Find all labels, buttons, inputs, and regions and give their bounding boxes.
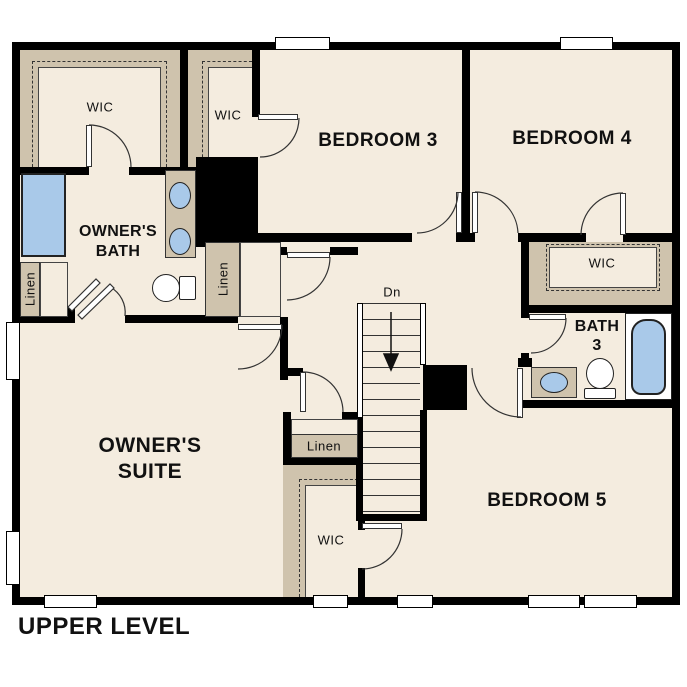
owners-bath-label-line1: OWNER'S (79, 223, 157, 241)
wall-segment (420, 410, 427, 521)
wall-segment (283, 458, 360, 465)
linen-hall-lower-label: Linen (307, 439, 341, 454)
floor-plan: WIC WIC WIC WIC Linen Linen Linen Dn BED… (0, 0, 687, 687)
wall-segment (518, 358, 532, 367)
bathtub (631, 319, 666, 395)
wall-segment (356, 513, 427, 521)
bedroom5-label: BEDROOM 5 (487, 490, 607, 512)
window (275, 37, 330, 50)
staircase (363, 303, 420, 514)
wall-segment (672, 42, 680, 605)
chase-void (423, 365, 467, 410)
linen-hall-lower-interior (291, 419, 358, 435)
door-leaf (238, 324, 282, 330)
wic-owners-interior (38, 67, 161, 167)
sink (169, 228, 191, 255)
owners-bath-label-line2: BATH (96, 243, 140, 261)
bathtub (21, 173, 66, 257)
window (6, 531, 20, 585)
chase-void (196, 157, 258, 247)
wall-segment (623, 233, 672, 242)
toilet-tank (584, 388, 616, 399)
bedroom3-label: BEDROOM 3 (318, 130, 438, 152)
linen-bath-label: Linen (23, 272, 38, 306)
toilet-bowl (152, 274, 180, 302)
plan-title: UPPER LEVEL (18, 613, 190, 641)
bath3-label-line2: 3 (592, 337, 601, 355)
door-leaf (258, 114, 298, 120)
window (584, 595, 637, 608)
stairs-dn-label: Dn (383, 285, 401, 300)
wic-bedroom3-label: WIC (215, 108, 242, 123)
wall-segment (529, 305, 672, 313)
door-leaf (472, 192, 478, 233)
window (560, 37, 613, 50)
wall-segment (330, 247, 358, 255)
bath3-label-line1: BATH (575, 318, 619, 336)
wic-owners-label: WIC (87, 100, 114, 115)
linen-bath-interior (40, 262, 68, 317)
door-leaf (517, 368, 523, 418)
wic-bedroom5-label: WIC (318, 533, 345, 548)
door-leaf (86, 125, 92, 167)
linen-hall-upper-interior (240, 242, 281, 317)
bedroom4-label: BEDROOM 4 (512, 128, 632, 150)
wall-segment (258, 233, 412, 242)
window (528, 595, 580, 608)
window (6, 322, 20, 380)
toilet-tank (179, 276, 196, 300)
sink (540, 372, 568, 393)
wall-segment (521, 400, 672, 408)
stair-railing (420, 303, 426, 365)
wall-segment (521, 242, 529, 318)
wall-segment (358, 568, 365, 597)
window (313, 595, 348, 608)
wall-segment (456, 233, 475, 242)
door-leaf (529, 314, 566, 320)
wall-segment (518, 233, 586, 242)
wall-segment (180, 42, 188, 175)
sink (169, 182, 191, 209)
door-leaf (620, 193, 626, 235)
door-leaf (287, 252, 330, 258)
owners-suite-label-line2: SUITE (118, 460, 182, 484)
stair-railing (357, 303, 363, 418)
wall-segment (462, 42, 470, 237)
wall-segment (252, 42, 260, 117)
door-leaf (456, 192, 462, 233)
toilet-bowl (586, 358, 614, 389)
wic-bedroom4-label: WIC (589, 256, 616, 271)
owners-suite-label-line1: OWNER'S (99, 434, 202, 458)
door-leaf (362, 523, 402, 529)
linen-hall-upper-label: Linen (216, 262, 231, 296)
door-leaf (300, 372, 306, 412)
window (44, 595, 97, 608)
window (397, 595, 433, 608)
